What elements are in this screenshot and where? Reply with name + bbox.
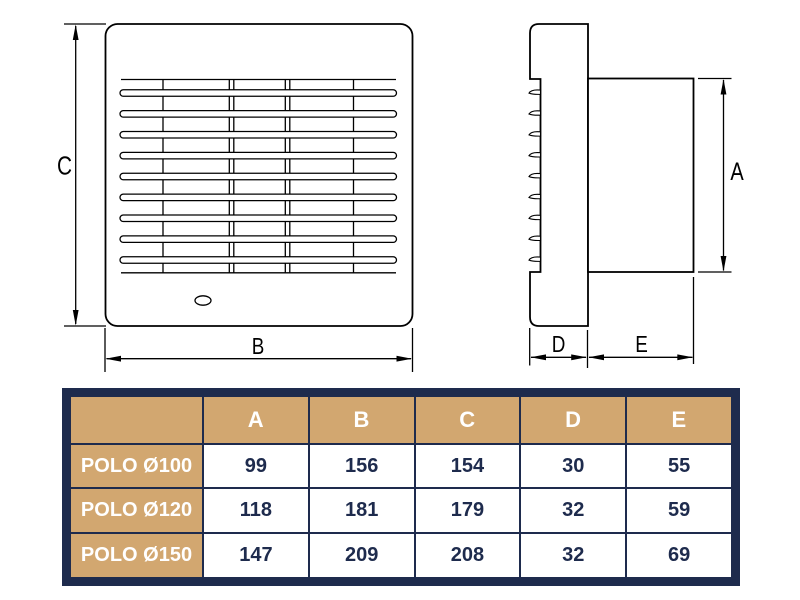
svg-text:A: A (730, 158, 744, 186)
svg-text:B: B (252, 334, 265, 359)
svg-text:D: D (552, 332, 566, 357)
svg-text:E: E (635, 332, 648, 357)
svg-text:C: C (57, 151, 72, 180)
